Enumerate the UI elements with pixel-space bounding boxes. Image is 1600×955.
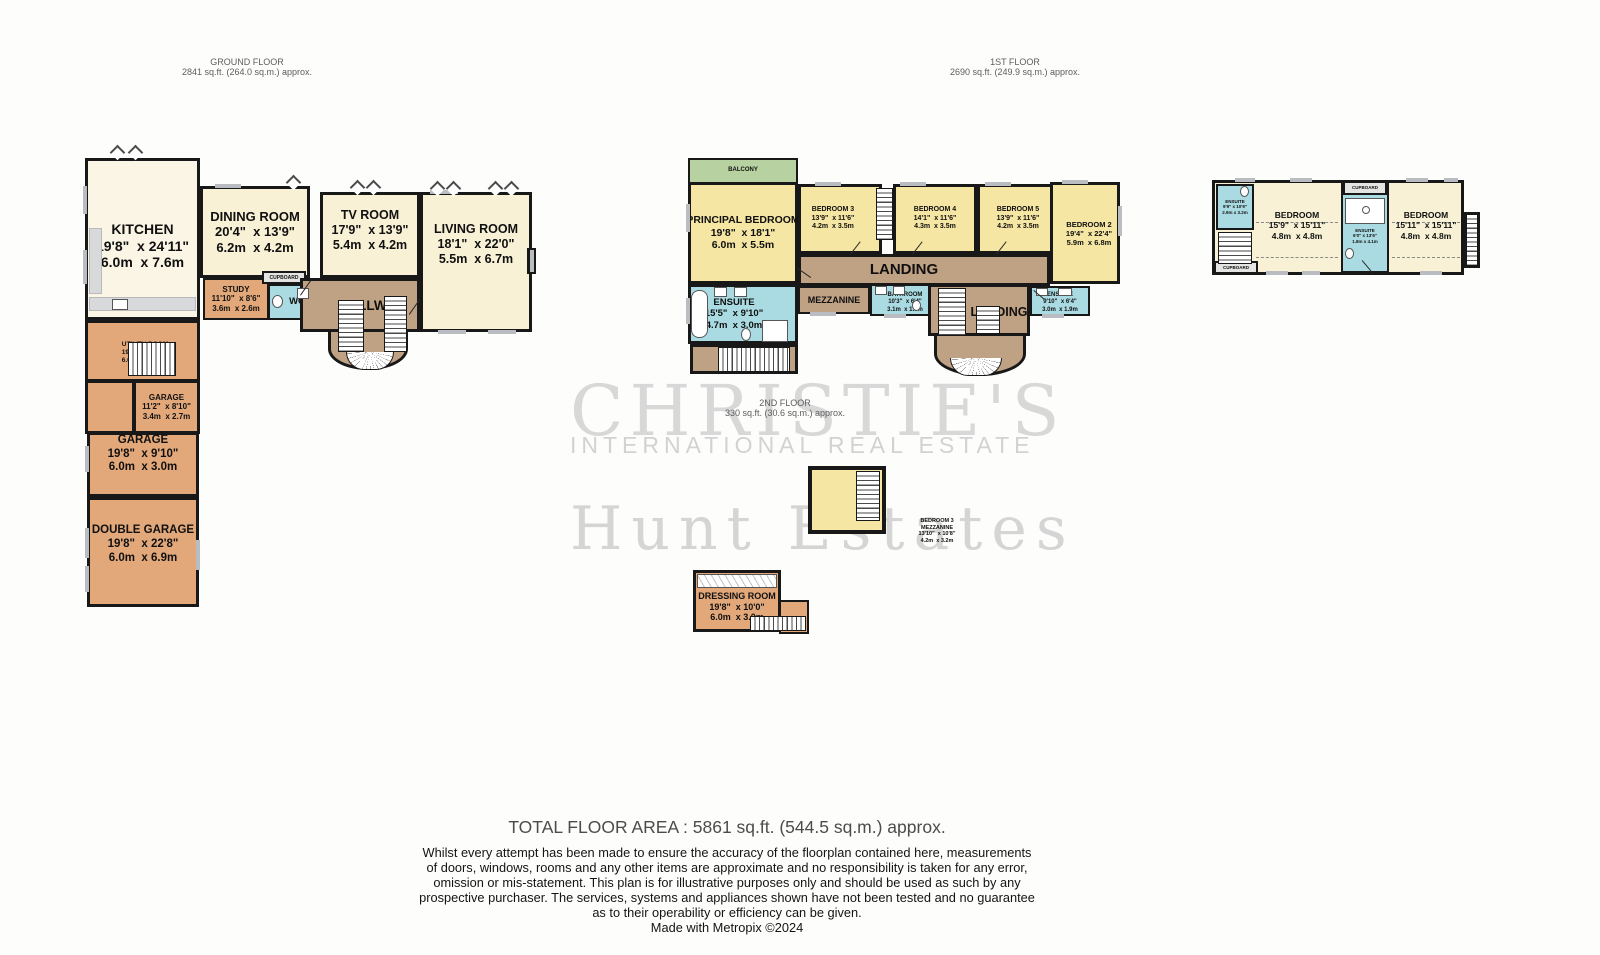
principal-ensuite-name: ENSUITE — [705, 297, 763, 308]
ground-floor-title: GROUND FLOOR — [97, 57, 397, 67]
annex-cupboard-bottom-name: CUPBOARD — [1223, 265, 1249, 270]
garage-dims-imperial: 19'8" x 9'10" — [108, 448, 179, 462]
dressing-dims-imperial: 19'8" x 10'0" — [698, 602, 776, 613]
bathtub-icon — [691, 290, 708, 338]
room-bedroom5: BEDROOM 5 13'9" x 11'6" 4.2m x 3.5m — [977, 184, 1059, 254]
room-bedroom4: BEDROOM 4 14'1" x 11'6" 4.3m x 3.5m — [893, 184, 977, 254]
study-dims-metric: 3.6m x 2.6m — [212, 304, 261, 314]
window-marker — [1062, 180, 1088, 184]
principal-dims-imperial: 19'8" x 18'1" — [686, 227, 799, 240]
room-principal-bedroom: PRINCIPAL BEDROOM 19'8" x 18'1" 6.0m x 5… — [688, 182, 798, 284]
bedroom5-label: BEDROOM 5 13'9" x 11'6" 4.2m x 3.5m — [997, 206, 1040, 231]
double-garage-label: DOUBLE GARAGE 19'8" x 22'8" 6.0m x 6.9m — [92, 524, 194, 579]
staircase — [718, 347, 790, 372]
toilet-icon — [1345, 248, 1354, 259]
second-floor-title: 2ND FLOOR — [635, 398, 935, 408]
bedroom3-mezzanine-name2: MEZZANINE — [898, 525, 976, 532]
staircase — [856, 471, 880, 521]
kitchen-counter — [89, 297, 196, 311]
living-name: LIVING ROOM — [434, 222, 518, 237]
annex-bedroom-right-dims-imperial: 15'11" x 15'11" — [1386, 220, 1466, 230]
garage-small-dims-metric: 3.4m x 2.7m — [142, 412, 191, 422]
bedroom4-label: BEDROOM 4 14'1" x 11'6" 4.3m x 3.5m — [914, 206, 957, 231]
room-landing-main: LANDING — [798, 254, 1050, 286]
annex-ensuite-left-dims-imperial: 9'9" x 10'9" — [1222, 204, 1248, 209]
disclaimer-line: Whilst every attempt has been made to en… — [227, 845, 1227, 860]
garage-dims-metric: 6.0m x 3.0m — [108, 461, 179, 475]
disclaimer-line: as to their operability or efficiency ca… — [227, 905, 1227, 920]
living-dims-imperial: 18'1" x 22'0" — [434, 237, 518, 252]
window-marker — [488, 330, 516, 334]
annex-bedroom-right-dims-metric: 4.8m x 4.8m — [1386, 231, 1466, 241]
room-bedroom2: BEDROOM 2 19'4" x 22'4" 5.9m x 6.8m — [1050, 182, 1120, 284]
appliance-icon — [112, 299, 128, 310]
double-garage-dims-metric: 6.0m x 6.9m — [92, 552, 194, 566]
staircase — [976, 306, 1000, 334]
window-marker — [900, 182, 926, 186]
tv-name: TV ROOM — [332, 208, 409, 223]
window-marker — [810, 312, 836, 316]
disclaimer-line: prospective purchaser. The services, sys… — [227, 890, 1227, 905]
dining-dims-metric: 6.2m x 4.2m — [210, 240, 300, 256]
sink-icon — [1362, 206, 1370, 214]
tv-label: TV ROOM 17'9" x 13'9" 5.4m x 4.2m — [332, 208, 409, 263]
staircase — [1466, 214, 1478, 266]
principal-dims-metric: 6.0m x 5.5m — [686, 239, 799, 252]
bedroom3-label: BEDROOM 3 13'9" x 11'6" 4.2m x 3.5m — [812, 206, 869, 231]
window-marker — [530, 250, 534, 272]
first-floor-title: 1ST FLOOR — [865, 57, 1165, 67]
kitchen-dims-imperial: 19'8" x 24'11" — [96, 238, 189, 255]
cupboard-gf-name: CUPBOARD — [270, 275, 299, 281]
bedroom3-dims-metric: 4.2m x 3.5m — [812, 223, 855, 231]
bedroom3-name: BEDROOM 3 — [812, 206, 855, 214]
window-marker — [1042, 314, 1064, 318]
mezzanine-name: MEZZANINE — [808, 295, 861, 306]
room-tv: TV ROOM 17'9" x 13'9" 5.4m x 4.2m — [320, 192, 420, 278]
floorplan-canvas: CHRISTIE'S INTERNATIONAL REAL ESTATE Hun… — [0, 0, 1600, 955]
toilet-icon — [272, 295, 283, 308]
room-garage-corridor — [85, 380, 135, 434]
balcony-name: BALCONY — [728, 167, 758, 174]
principal-label: PRINCIPAL BEDROOM 19'8" x 18'1" 6.0m x 5… — [686, 214, 799, 252]
first-floor-area: 2690 sq.ft. (249.9 sq.m.) approx. — [865, 67, 1165, 77]
study-label: STUDY 11'10" x 8'6" 3.6m x 2.6m — [212, 285, 261, 314]
living-dims-metric: 5.5m x 6.7m — [434, 252, 518, 267]
garage-label: GARAGE 19'8" x 9'10" 6.0m x 3.0m — [108, 434, 179, 495]
dressing-name: DRESSING ROOM — [698, 591, 776, 602]
ceiling-line — [1256, 257, 1338, 258]
room-garage-small: GARAGE 11'2" x 8'10" 3.4m x 2.7m — [133, 380, 200, 434]
ground-floor-header: GROUND FLOOR 2841 sq.ft. (264.0 sq.m.) a… — [97, 57, 397, 77]
room-garage: GARAGE 19'8" x 9'10" 6.0m x 3.0m — [87, 432, 199, 497]
bedroom3-mezzanine-dims-metric: 4.2m x 3.2m — [898, 538, 976, 545]
bedroom5-name: BEDROOM 5 — [997, 206, 1040, 214]
first-floor-header: 1ST FLOOR 2690 sq.ft. (249.9 sq.m.) appr… — [865, 57, 1165, 77]
principal-ensuite-dims-imperial: 15'5" x 9'10" — [705, 308, 763, 319]
tv-dims-imperial: 17'9" x 13'9" — [332, 223, 409, 238]
bedroom2-name: BEDROOM 2 — [1066, 220, 1112, 229]
staircase — [750, 616, 806, 631]
second-floor-area: 330 sq.ft. (30.6 sq.m.) approx. — [635, 408, 935, 418]
staircase — [128, 342, 176, 376]
toilet-icon — [1240, 186, 1249, 197]
window-marker — [1266, 271, 1288, 275]
annex-bedroom-right-name: BEDROOM — [1386, 210, 1466, 220]
room-dining: DINING ROOM 20'4" x 13'9" 6.2m x 4.2m — [200, 186, 310, 278]
bedroom3-mezzanine-name: BEDROOM 3 — [898, 518, 976, 525]
room-study: STUDY 11'10" x 8'6" 3.6m x 2.6m — [203, 278, 269, 320]
garage-small-name: GARAGE — [142, 393, 191, 403]
bedroom5-dims-imperial: 13'9" x 11'6" — [997, 215, 1040, 223]
window-marker — [1118, 206, 1122, 236]
cupboard-gf-label: CUPBOARD — [270, 275, 299, 281]
toilet-icon — [741, 328, 751, 341]
kitchen-name: KITCHEN — [96, 221, 189, 238]
annex-bedroom-left-label: BEDROOM 15'9" x 15'11" 4.8m x 4.8m — [1252, 210, 1342, 241]
dining-label: DINING ROOM 20'4" x 13'9" 6.2m x 4.2m — [210, 209, 300, 256]
dining-dims-imperial: 20'4" x 13'9" — [210, 224, 300, 240]
window-marker — [83, 250, 87, 284]
staircase — [938, 288, 966, 336]
bedroom3-mezzanine-dims-imperial: 13'10" x 10'8" — [898, 531, 976, 538]
staircase — [338, 300, 364, 352]
bedroom3-dims-imperial: 13'9" x 11'6" — [812, 215, 855, 223]
landing-ensuite-dims-metric: 3.0m x 1.9m — [1042, 307, 1078, 314]
second-floor-header: 2ND FLOOR 330 sq.ft. (30.6 sq.m.) approx… — [635, 398, 935, 418]
living-label: LIVING ROOM 18'1" x 22'0" 5.5m x 6.7m — [434, 222, 518, 303]
annex-bedroom-left-dims-imperial: 15'9" x 15'11" — [1252, 220, 1342, 230]
bedroom4-name: BEDROOM 4 — [914, 206, 957, 214]
landing-main-name: LANDING — [870, 261, 938, 279]
bedroom2-label: BEDROOM 2 19'4" x 22'4" 5.9m x 6.8m — [1058, 220, 1112, 247]
watermark-brand-subtitle: INTERNATIONAL REAL ESTATE — [570, 432, 1000, 459]
window-marker — [196, 540, 200, 570]
annex-bedroom-left-dims-metric: 4.8m x 4.8m — [1252, 231, 1342, 241]
disclaimer-line: of doors, windows, rooms and any other i… — [227, 860, 1227, 875]
staircase — [1218, 232, 1252, 264]
mezzanine-label: MEZZANINE — [808, 295, 861, 306]
disclaimer-line: omission or mis-statement. This plan is … — [227, 875, 1227, 890]
window-marker — [686, 204, 690, 232]
window-marker — [686, 298, 690, 324]
ceiling-line — [1392, 257, 1460, 258]
room-bedroom3: BEDROOM 3 13'9" x 11'6" 4.2m x 3.5m — [798, 184, 882, 254]
window-marker — [438, 330, 466, 334]
ground-floor-area: 2841 sq.ft. (264.0 sq.m.) approx. — [97, 67, 397, 77]
room-double-garage: DOUBLE GARAGE 19'8" x 22'8" 6.0m x 6.9m — [87, 497, 199, 607]
shower-icon — [762, 320, 788, 342]
landing-main-label: LANDING — [870, 261, 978, 279]
window-marker — [85, 566, 89, 592]
annex-cupboard-top-name: CUPBOARD — [1352, 185, 1378, 190]
annex-ensuite-mid-label: ENSUITE 6'0" x 13'6" 1.8m x 4.1m — [1344, 228, 1386, 244]
window-marker — [1444, 178, 1458, 182]
kitchen-label: KITCHEN 19'8" x 24'11" 6.0m x 7.6m — [96, 207, 189, 271]
balcony-label: BALCONY — [728, 167, 758, 174]
double-garage-name: DOUBLE GARAGE — [92, 524, 194, 538]
window-marker — [1235, 178, 1255, 182]
room-kitchen: KITCHEN 19'8" x 24'11" 6.0m x 7.6m — [85, 158, 200, 320]
window-marker — [1290, 178, 1312, 182]
annex-cupboard-bottom-label: CUPBOARD — [1223, 265, 1249, 270]
sink-icon — [714, 287, 727, 297]
dining-name: DINING ROOM — [210, 209, 300, 225]
annex-bedroom-right-label: BEDROOM 15'11" x 15'11" 4.8m x 4.8m — [1386, 210, 1466, 241]
principal-name: PRINCIPAL BEDROOM — [686, 214, 799, 227]
sink-icon — [734, 287, 747, 297]
annex-cupboard-top-label: CUPBOARD — [1352, 185, 1378, 190]
window-marker — [1420, 271, 1442, 275]
bedroom4-dims-metric: 4.3m x 3.5m — [914, 223, 957, 231]
room-balcony: BALCONY — [688, 158, 798, 184]
window-marker — [815, 182, 841, 186]
window-marker — [215, 184, 241, 188]
room-annex-cupboard-top: CUPBOARD — [1343, 181, 1387, 195]
toilet-icon — [912, 300, 921, 311]
kitchen-counter — [89, 228, 102, 294]
bedroom2-dims-imperial: 19'4" x 22'4" — [1066, 229, 1112, 238]
study-dims-imperial: 11'10" x 8'6" — [212, 294, 261, 304]
garage-small-label: GARAGE 11'2" x 8'10" 3.4m x 2.7m — [142, 393, 191, 422]
bedroom4-dims-imperial: 14'1" x 11'6" — [914, 215, 957, 223]
sink-icon — [1058, 288, 1072, 296]
garage-small-dims-imperial: 11'2" x 8'10" — [142, 402, 191, 412]
metropix-credit: Made with Metropix ©2024 — [227, 920, 1227, 935]
annex-bedroom-left-name: BEDROOM — [1252, 210, 1342, 220]
landing-ensuite-dims-imperial: 9'10" x 6'4" — [1042, 299, 1078, 306]
study-name: STUDY — [212, 285, 261, 295]
window-marker — [884, 314, 906, 318]
bedroom3-mezzanine-label: BEDROOM 3 MEZZANINE 13'10" x 10'8" 4.2m … — [898, 518, 976, 545]
window-marker — [1406, 178, 1428, 182]
window-marker — [985, 182, 1011, 186]
double-garage-dims-imperial: 19'8" x 22'8" — [92, 538, 194, 552]
staircase — [384, 296, 407, 352]
annex-ensuite-left-dims-metric: 2.9m x 3.2m — [1222, 210, 1248, 215]
tv-dims-metric: 5.4m x 4.2m — [332, 238, 409, 253]
sink-icon — [893, 286, 905, 295]
total-floor-area: TOTAL FLOOR AREA : 5861 sq.ft. (544.5 sq… — [227, 817, 1227, 838]
room-mezzanine: MEZZANINE — [798, 286, 870, 314]
window-marker — [85, 446, 89, 472]
window-marker — [1302, 271, 1320, 275]
principal-ensuite-dims-metric: 4.7m x 3.0m — [705, 320, 763, 331]
room-living: LIVING ROOM 18'1" x 22'0" 5.5m x 6.7m — [420, 192, 532, 332]
annex-ensuite-mid-dims-metric: 1.8m x 4.1m — [1344, 239, 1386, 244]
wardrobe-counter — [697, 574, 777, 588]
bedroom2-dims-metric: 5.9m x 6.8m — [1066, 238, 1112, 247]
window-marker — [83, 186, 87, 214]
staircase — [876, 188, 893, 240]
window-marker — [85, 528, 89, 558]
sink-icon — [875, 286, 887, 295]
bedroom5-dims-metric: 4.2m x 3.5m — [997, 223, 1040, 231]
garage-name: GARAGE — [108, 434, 179, 448]
annex-ensuite-left-label: ENSUITE 9'9" x 10'9" 2.9m x 3.2m — [1222, 199, 1248, 215]
disclaimer: Whilst every attempt has been made to en… — [227, 845, 1227, 935]
kitchen-dims-metric: 6.0m x 7.6m — [96, 254, 189, 271]
